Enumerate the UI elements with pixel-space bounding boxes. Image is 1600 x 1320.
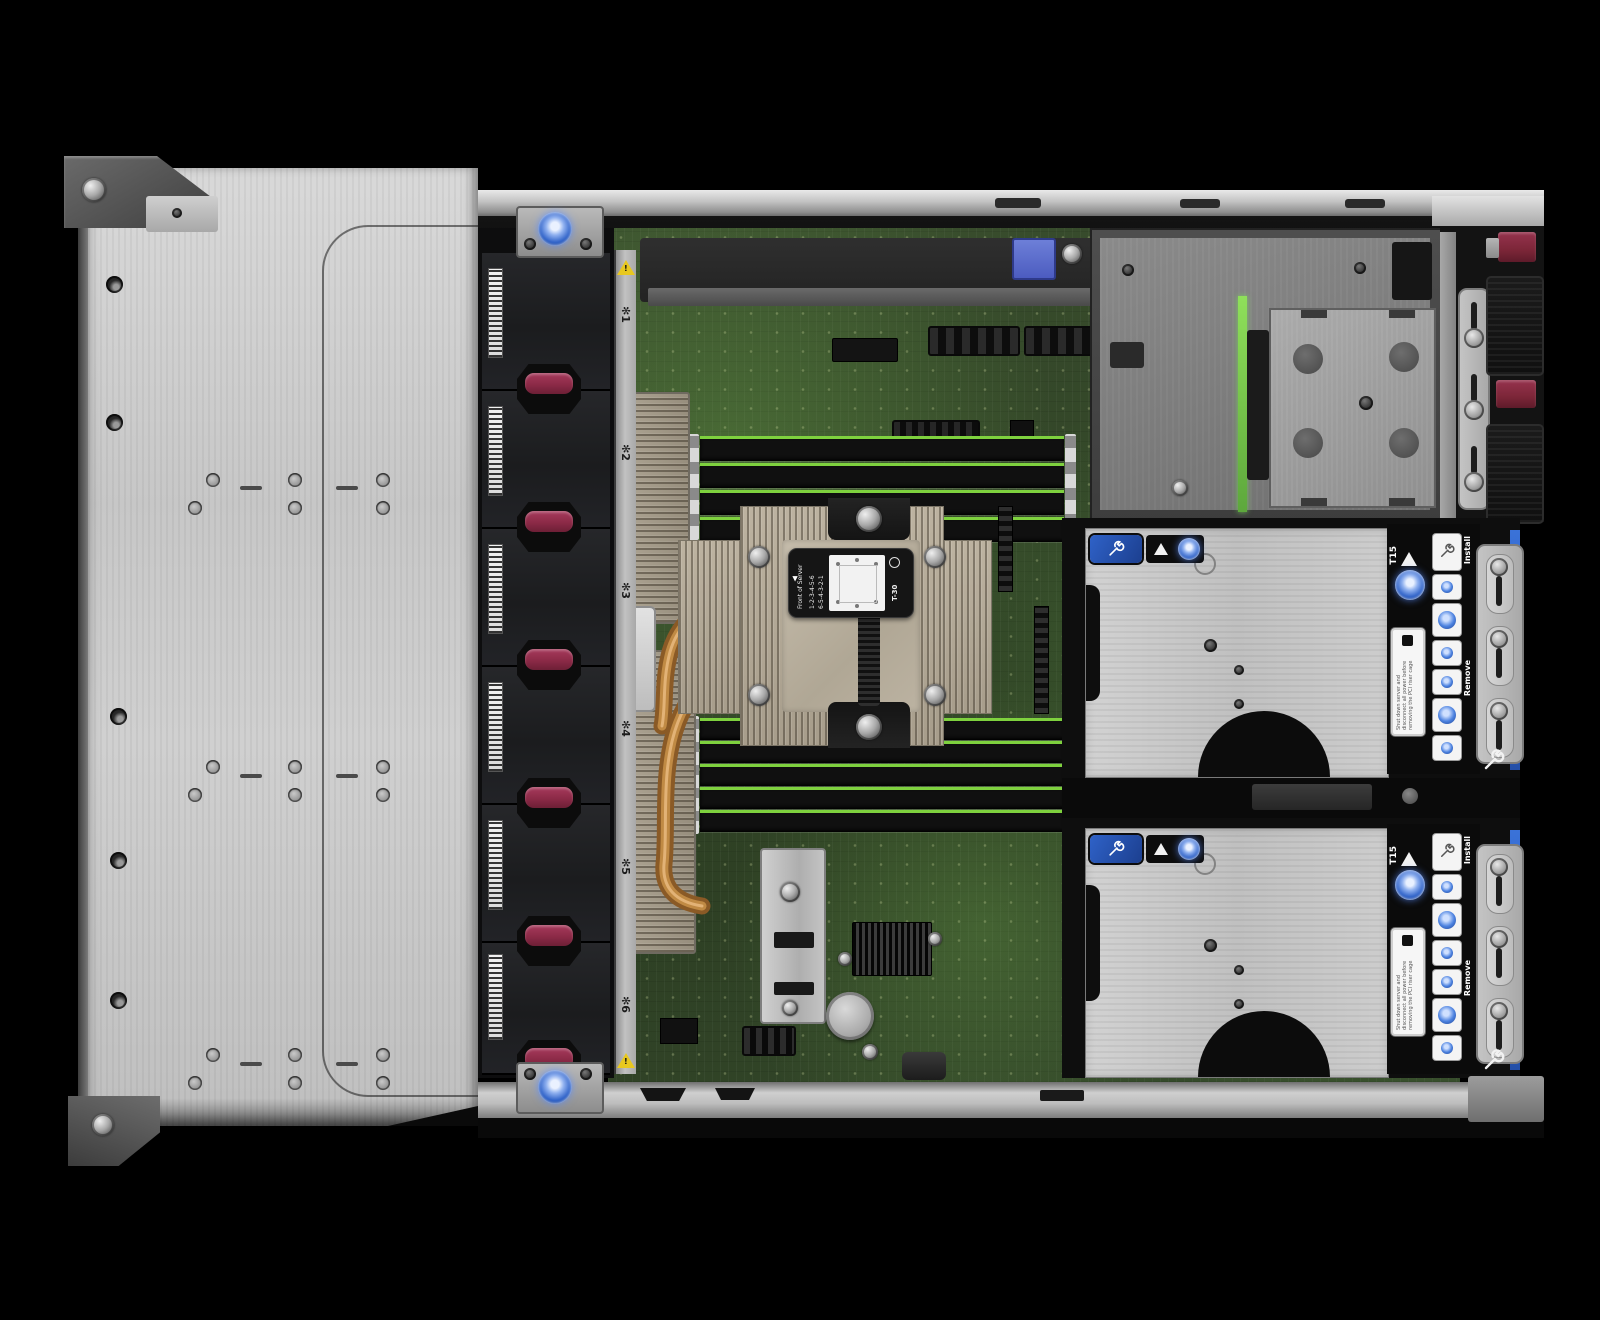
wrench-icon xyxy=(1482,1048,1506,1072)
instruction-strip xyxy=(1433,534,1461,766)
alignment-hole xyxy=(110,992,127,1009)
warning-sticker-text: Shut down server and disconnect all powe… xyxy=(1396,950,1418,1030)
rail-notch xyxy=(1345,199,1385,208)
stamped-slot xyxy=(336,486,358,490)
step-icon xyxy=(1433,970,1461,994)
captive-screw[interactable] xyxy=(1178,538,1200,560)
front-of-server-text: Front of Server xyxy=(797,557,804,609)
riser-notch xyxy=(1198,1011,1330,1078)
step-icon xyxy=(1433,670,1461,694)
t15-label: T15 xyxy=(1389,546,1399,565)
carrier-green-edge xyxy=(1238,296,1247,512)
vent-hole xyxy=(288,501,302,515)
stamped-slot xyxy=(240,1062,262,1066)
carrier-dark-slot xyxy=(1247,330,1269,480)
vent-hole xyxy=(288,473,302,487)
stamped-slot xyxy=(336,774,358,778)
warning-triangle-icon: ! xyxy=(617,1053,635,1068)
cage-screw xyxy=(1122,264,1134,276)
tray-notch xyxy=(1389,310,1415,318)
riser-cover-plate xyxy=(1085,828,1389,1078)
fan-number-4: ✻4 xyxy=(619,720,632,737)
corner-tab xyxy=(146,196,218,232)
bracket-screw xyxy=(524,238,536,250)
keyhole-screw xyxy=(1490,858,1508,876)
install-label: Install xyxy=(1463,536,1472,564)
rail-notch xyxy=(640,1088,686,1101)
riser-left-indent xyxy=(1085,585,1100,701)
plate-hole xyxy=(1204,639,1217,652)
bracket-screw xyxy=(580,238,592,250)
server-internal-photo: ▲ Front of Server 1-2-3-4-5-6 6-5-4-3-2-… xyxy=(0,0,1600,1320)
power-connector xyxy=(928,326,1020,356)
wrench-tag xyxy=(1482,1048,1508,1072)
fan-latch-handle xyxy=(525,787,573,808)
alignment-hole xyxy=(110,708,127,725)
triangle-mark xyxy=(1154,543,1168,555)
fan-barcode-label xyxy=(488,820,503,910)
bracket-screw xyxy=(580,1068,592,1080)
rail-notch xyxy=(715,1088,755,1100)
fan-latch-handle xyxy=(525,373,573,394)
vent-hole xyxy=(188,788,202,802)
wrench-tab xyxy=(1090,835,1142,863)
vent-hole xyxy=(288,760,302,774)
keyhole-slot xyxy=(1496,948,1502,978)
fan-icon: ✻ xyxy=(619,306,632,315)
vent-hole xyxy=(376,473,390,487)
bracket-screw xyxy=(524,1068,536,1080)
keyhole-screw xyxy=(1464,472,1484,492)
step-icon xyxy=(1433,736,1461,760)
keyhole-screw xyxy=(1490,558,1508,576)
step-icon xyxy=(1433,999,1461,1031)
heatsink-screw xyxy=(748,684,770,706)
cage-corner-block xyxy=(1392,242,1432,300)
fan-barcode-label xyxy=(488,268,503,358)
vent-hole xyxy=(288,1076,302,1090)
fan-number-strip: ! ✻1 ✻2 ✻3 ✻4 ✻5 ✻6 ! xyxy=(614,250,636,1074)
plate-hole xyxy=(1234,965,1244,975)
chipset-screw xyxy=(928,932,942,946)
shroud-lip xyxy=(648,288,1104,306)
keyhole-screw xyxy=(1490,930,1508,948)
warning-triangle-icon: ! xyxy=(617,260,635,275)
warning-sticker-text: Shut down server and disconnect all powe… xyxy=(1396,650,1418,730)
screw-tab xyxy=(1146,835,1204,863)
rail-notch xyxy=(1180,199,1220,208)
tray-hole xyxy=(1293,428,1323,458)
embossed-outline xyxy=(322,225,478,1097)
shroud-screw xyxy=(1062,244,1082,264)
corner-tab-screw xyxy=(172,208,182,218)
rail-notch xyxy=(1040,1090,1084,1101)
step-icon xyxy=(1433,875,1461,899)
captive-screw[interactable] xyxy=(1178,838,1200,860)
fan-bank xyxy=(478,228,614,1078)
riser-slot-connector xyxy=(1034,606,1049,714)
riser-keyhole-bracket xyxy=(1476,844,1524,1064)
tpm-connector xyxy=(902,1052,946,1080)
step-icon xyxy=(1433,1036,1461,1060)
install-seq-text: 1-2-3-4-5-6 xyxy=(809,557,816,609)
wrench-icon xyxy=(1482,748,1506,772)
fan-barcode-label xyxy=(488,954,503,1040)
coin-cell-battery xyxy=(826,992,874,1040)
keyhole-slot xyxy=(1496,648,1502,678)
psu-tab-clip xyxy=(1486,238,1499,258)
vent-hole xyxy=(206,1048,220,1062)
t15-label: T15 xyxy=(1389,846,1399,865)
cage-screw xyxy=(1172,480,1188,496)
keyhole-slot xyxy=(1471,374,1477,402)
step-icon xyxy=(1433,641,1461,665)
keyhole-screw xyxy=(1490,1002,1508,1020)
step-icon xyxy=(1433,699,1461,731)
fan-barcode-label xyxy=(488,682,503,772)
cage-clip xyxy=(1110,342,1144,368)
alignment-hole xyxy=(110,852,127,869)
vent-hole xyxy=(376,1076,390,1090)
triangle-mark xyxy=(1401,552,1417,566)
torx-t30-text: T-30 xyxy=(891,567,899,601)
bracket-slot xyxy=(774,982,814,995)
step-icon xyxy=(1433,604,1461,636)
fan-latch-handle xyxy=(525,925,573,946)
tray-notch xyxy=(1301,310,1327,318)
install-label: Install xyxy=(1463,836,1472,864)
tray-hole xyxy=(1293,344,1323,374)
rail-end-cap xyxy=(1468,1076,1544,1122)
wrench-icon xyxy=(1106,839,1126,859)
rear-drive-cage xyxy=(1090,228,1444,524)
heatsink-screw xyxy=(924,684,946,706)
riser-keyhole-bracket xyxy=(1476,544,1524,764)
chassis-bottom-rail xyxy=(478,1082,1544,1118)
clamp-screw xyxy=(856,506,882,532)
dimm-module xyxy=(700,436,1064,461)
front-left-bottom-bracket xyxy=(68,1096,160,1166)
vent-hole xyxy=(376,788,390,802)
warning-sticker-icon xyxy=(1402,935,1413,946)
chipset-heatsink xyxy=(852,922,932,976)
keyhole-slot xyxy=(1471,302,1477,330)
clamp-screw xyxy=(856,714,882,740)
alignment-hole xyxy=(106,414,123,431)
screw-tab xyxy=(1146,535,1204,563)
fan-number-1: ✻1 xyxy=(619,306,632,323)
vent-hole xyxy=(376,1048,390,1062)
cage-screw xyxy=(1354,262,1366,274)
rail-notch xyxy=(995,198,1041,208)
bracket-screw xyxy=(782,1000,798,1016)
screw-order-diagram xyxy=(829,555,885,611)
gap-bracket xyxy=(1252,784,1372,810)
step-icon xyxy=(1433,941,1461,965)
vent-hole xyxy=(206,760,220,774)
keyhole-slot xyxy=(1496,876,1502,906)
vent-hole xyxy=(188,501,202,515)
chipset-screw xyxy=(838,952,852,966)
fan-number-6: ✻6 xyxy=(619,996,632,1013)
warning-sticker-icon xyxy=(1402,635,1413,646)
wrench-icon xyxy=(1106,539,1126,559)
riser-gap xyxy=(1062,778,1520,818)
stamped-slot xyxy=(240,774,262,778)
power-header xyxy=(742,1026,796,1056)
plate-hole xyxy=(1204,939,1217,952)
fan-icon: ✻ xyxy=(619,720,632,729)
plate-hole xyxy=(1234,665,1244,675)
diagram-dot xyxy=(855,558,859,562)
step-icon xyxy=(1433,904,1461,936)
warning-sticker: Shut down server and disconnect all powe… xyxy=(1391,928,1425,1036)
heatsink-screw xyxy=(748,546,770,568)
usb-internal-connector xyxy=(1012,238,1056,280)
riser-sticker-panel: T15 Install Remove Shut down server and … xyxy=(1387,524,1480,774)
vent-hole xyxy=(376,501,390,515)
psu-handle-1[interactable] xyxy=(1486,276,1544,376)
fan-icon: ✻ xyxy=(619,858,632,867)
drive-tray-plate xyxy=(1269,308,1436,508)
tray-screw xyxy=(1359,396,1373,410)
keyhole-screw xyxy=(1464,400,1484,420)
psu-handle-2[interactable] xyxy=(1486,424,1544,524)
plate-hole xyxy=(1234,999,1244,1009)
bracket-screw xyxy=(780,882,800,902)
fan-number-5: ✻5 xyxy=(619,858,632,875)
keyhole-screw xyxy=(1490,630,1508,648)
keyhole-slot xyxy=(1496,1020,1502,1050)
riser-left-indent xyxy=(1085,885,1100,1001)
thumbscrew-top[interactable] xyxy=(538,212,572,246)
psu-release-tab[interactable] xyxy=(1498,232,1536,262)
board-standoff xyxy=(862,1044,878,1060)
fan-icon: ✻ xyxy=(619,582,632,591)
t15-thumbscrew[interactable] xyxy=(1395,570,1425,600)
wrench-tab xyxy=(1090,535,1142,563)
triangle-mark xyxy=(1401,852,1417,866)
psu-release-tab[interactable] xyxy=(1496,380,1536,408)
torx-icon xyxy=(889,557,900,568)
vent-hole xyxy=(288,1048,302,1062)
rear-wall-edge xyxy=(1440,232,1456,518)
dimm-module xyxy=(700,463,1064,488)
alignment-hole xyxy=(106,276,123,293)
vent-hole xyxy=(206,473,220,487)
step-icon xyxy=(1433,575,1461,599)
keyhole-screw xyxy=(1464,328,1484,348)
fan-icon: ✻ xyxy=(619,996,632,1005)
instruction-strip xyxy=(1433,834,1461,1066)
fan-header xyxy=(660,1018,698,1044)
triangle-mark xyxy=(1154,843,1168,855)
keyhole-slot xyxy=(1496,576,1502,606)
riser-cage-2: T15 Install Remove Shut down server and … xyxy=(1062,818,1520,1078)
fan-number-3: ✻3 xyxy=(619,582,632,599)
gap-standoff xyxy=(1402,788,1418,804)
riser-sticker-panel: T15 Install Remove Shut down server and … xyxy=(1387,824,1480,1074)
diagram-dot xyxy=(855,604,859,608)
vent-hole xyxy=(288,788,302,802)
fan-barcode-label xyxy=(488,544,503,634)
step-icon-wrench xyxy=(1433,534,1461,570)
remove-seq-text: 6-5-4-3-2-1 xyxy=(818,557,825,609)
corner-screw xyxy=(82,178,106,202)
keyhole-screw xyxy=(1490,702,1508,720)
thumbscrew-bottom[interactable] xyxy=(538,1070,572,1104)
bottom-shadow-strip xyxy=(478,1118,1544,1138)
tray-hole xyxy=(1389,342,1419,372)
remove-label: Remove xyxy=(1463,960,1472,996)
stamped-slot xyxy=(240,486,262,490)
tray-notch xyxy=(1301,498,1327,506)
vent-hole xyxy=(376,760,390,774)
front-metal-cover xyxy=(88,168,478,1126)
riser-cover-plate xyxy=(1085,528,1389,778)
plate-hole xyxy=(1234,699,1244,709)
t15-thumbscrew[interactable] xyxy=(1395,870,1425,900)
warning-sticker: Shut down server and disconnect all powe… xyxy=(1391,628,1425,736)
rear-corner-rail xyxy=(1432,196,1544,226)
riser-cage-1: T15 Install Remove Shut down server and … xyxy=(1062,518,1520,778)
fan-latch-handle xyxy=(525,511,573,532)
keyhole-slot xyxy=(1471,446,1477,474)
heatsink-torque-label: ▲ Front of Server 1-2-3-4-5-6 6-5-4-3-2-… xyxy=(788,548,914,618)
fan-barcode-label xyxy=(488,406,503,496)
stamped-slot xyxy=(336,1062,358,1066)
fan-number-2: ✻2 xyxy=(619,444,632,461)
heatsink-screw xyxy=(924,546,946,568)
bracket-slot xyxy=(774,932,814,948)
tray-hole xyxy=(1389,428,1419,458)
riser-slot-connector xyxy=(998,506,1013,592)
corner-screw xyxy=(92,1114,114,1136)
tray-notch xyxy=(1389,498,1415,506)
step-icon-wrench xyxy=(1433,834,1461,870)
riser-notch xyxy=(1198,711,1330,778)
remove-label: Remove xyxy=(1463,660,1472,696)
fan-icon: ✻ xyxy=(619,444,632,453)
diagram-frame xyxy=(839,565,877,603)
fan-latch-handle xyxy=(525,649,573,670)
signal-header xyxy=(832,338,898,362)
wrench-tag xyxy=(1482,748,1508,772)
left-edge-strip xyxy=(78,198,88,1104)
keyhole-slot xyxy=(1496,720,1502,750)
vent-hole xyxy=(188,1076,202,1090)
